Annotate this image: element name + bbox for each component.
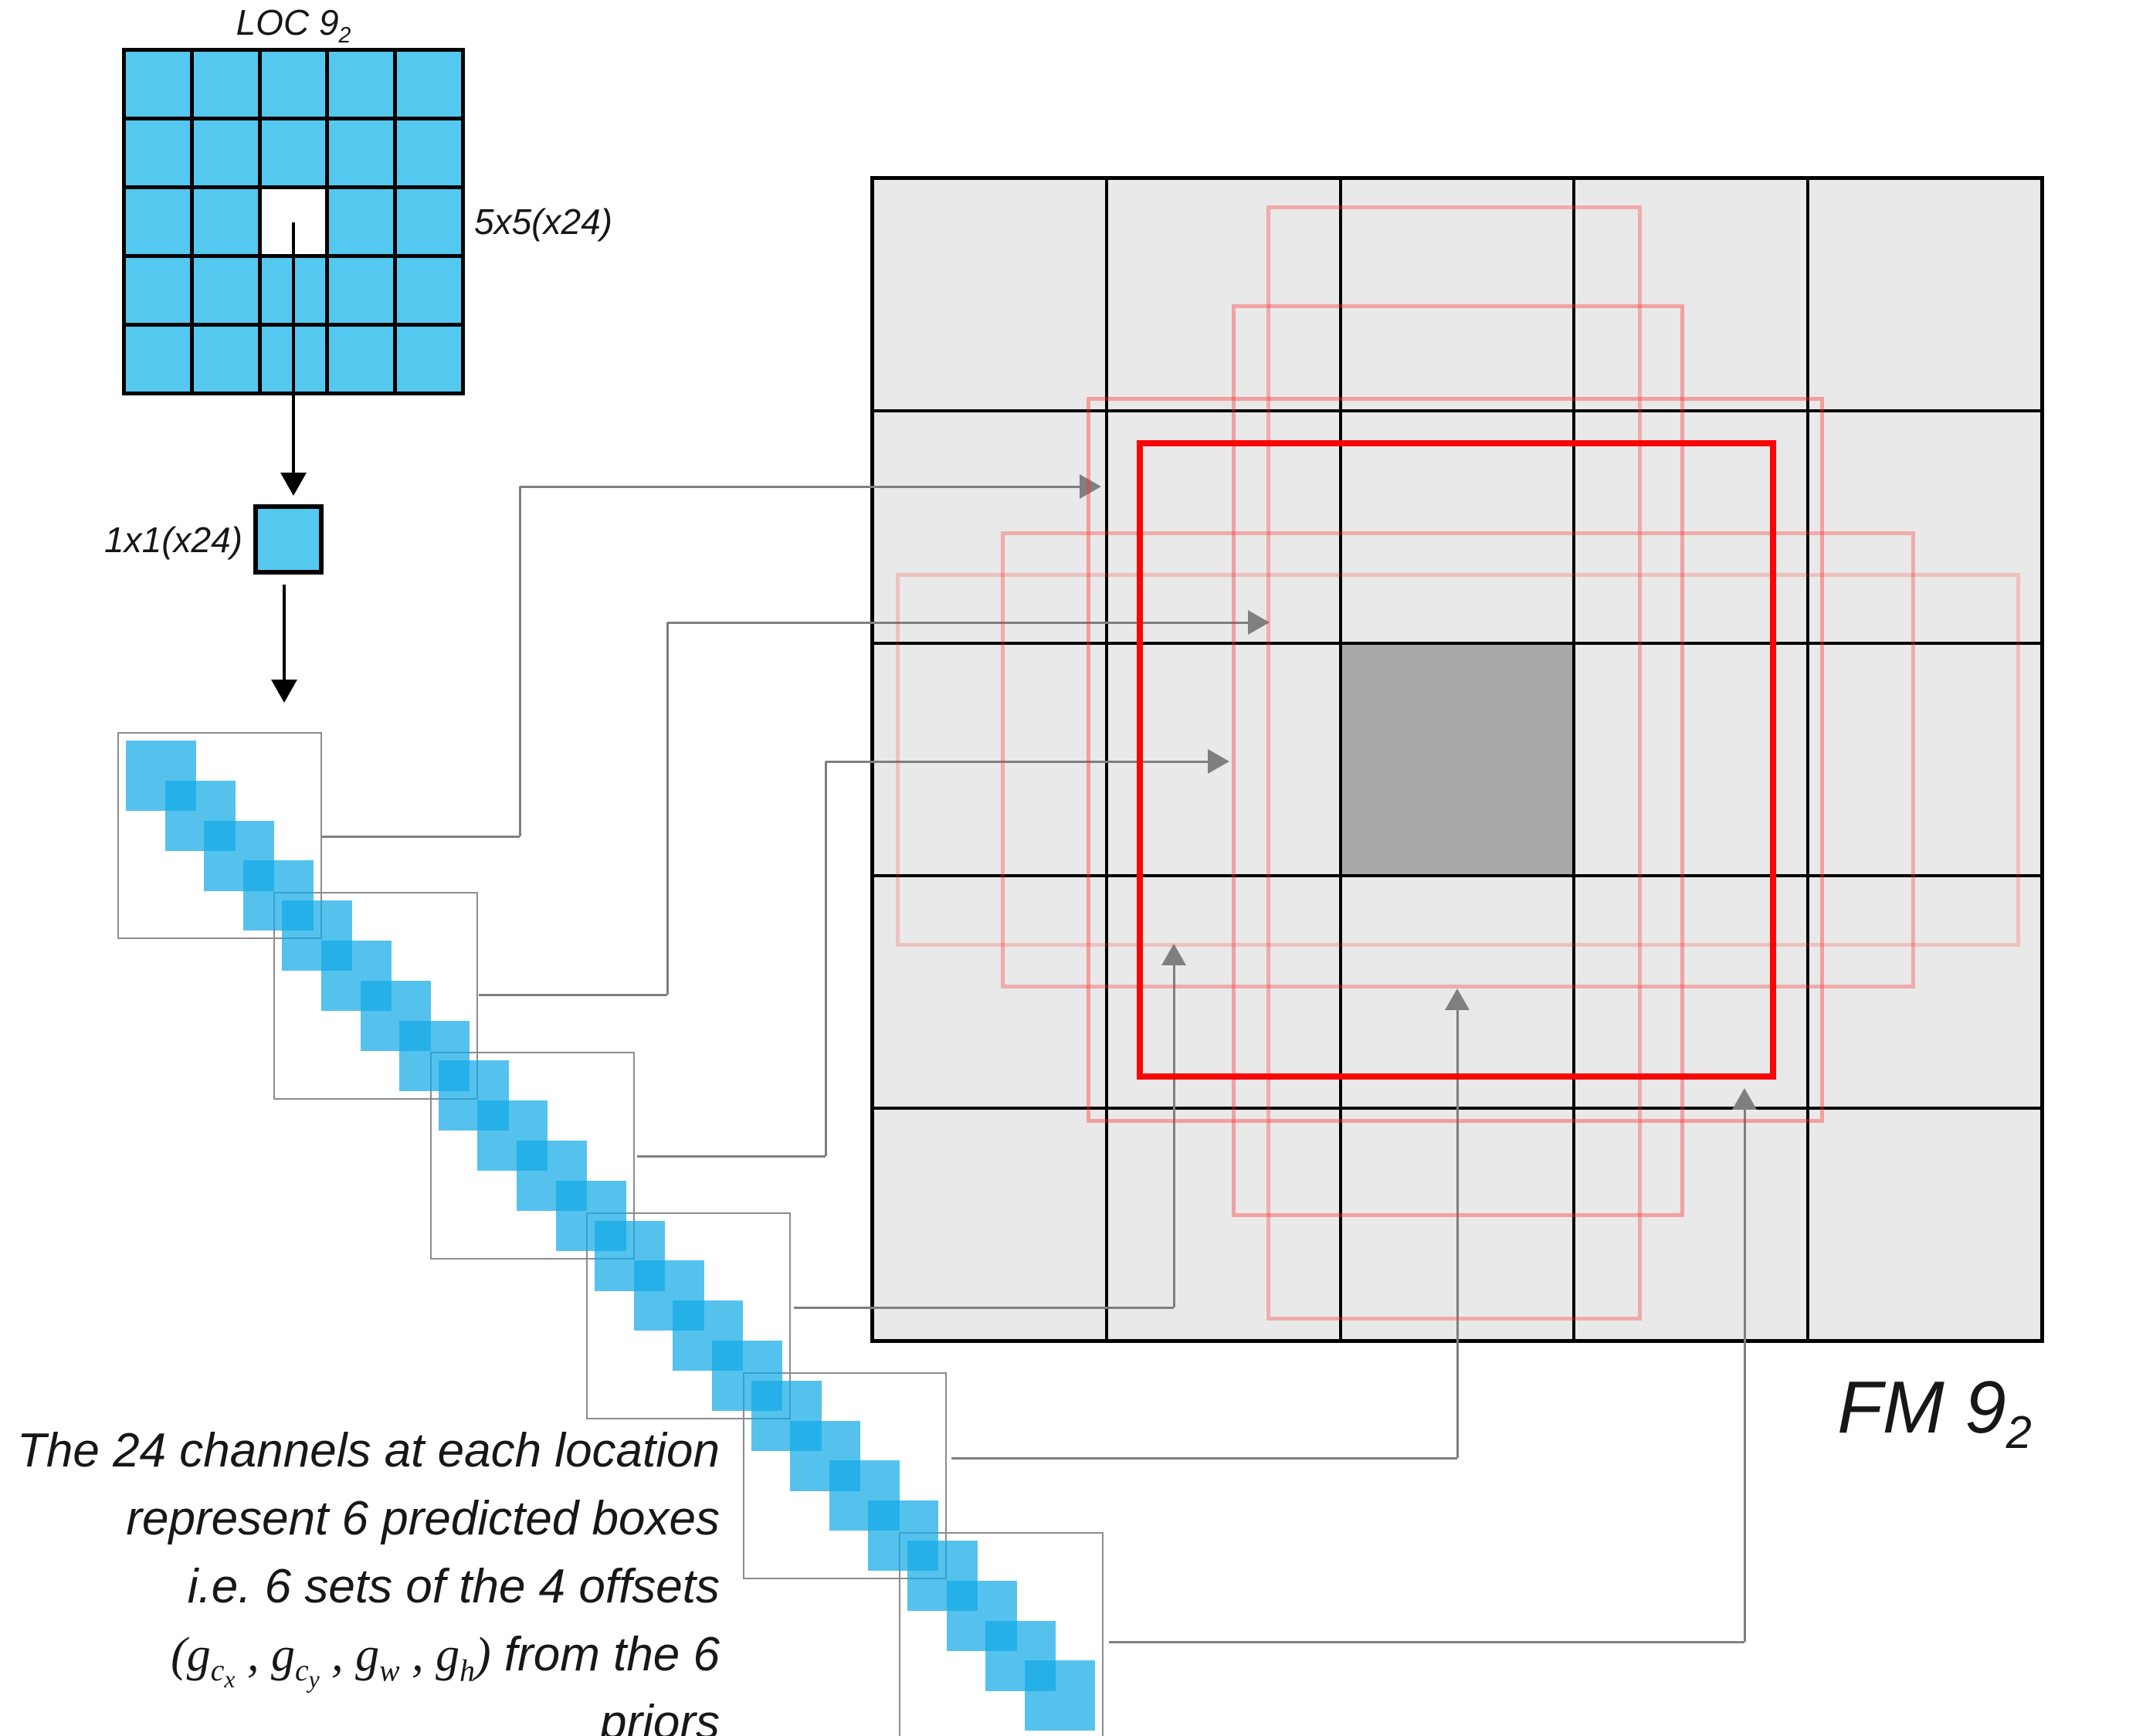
loc-grid-cell <box>194 327 258 392</box>
offset-symbol: gw <box>355 1629 399 1681</box>
loc-grid-cell <box>397 52 461 117</box>
offset-symbol-sub: cy <box>295 1653 320 1687</box>
connector-4-segment <box>794 1307 1174 1309</box>
offset-symbol-base: g <box>187 1629 211 1681</box>
fm-grid-cell <box>1809 180 2040 409</box>
loc-grid-cell <box>126 327 190 392</box>
loc-map-title-subscript: 2 <box>339 23 351 48</box>
prior-square-bold <box>1137 440 1776 1080</box>
arrow-loc-to-conv-arrowhead-icon <box>280 473 307 496</box>
offset-symbol-sub-text: c <box>295 1653 309 1687</box>
feature-map-title-subscript: 2 <box>2006 1406 2032 1458</box>
loc-grid-cell <box>262 120 326 185</box>
offset-symbol-subsub-text: y <box>309 1666 320 1693</box>
offset-symbol-sub-text: h <box>459 1653 475 1687</box>
formula-separator: , <box>320 1629 356 1681</box>
connector-1-segment <box>322 836 520 838</box>
offset-symbol-sub: w <box>379 1653 399 1687</box>
loc-grid-cell <box>397 327 461 392</box>
connector-5-segment <box>951 1457 1457 1460</box>
formula-open-paren: ( <box>171 1629 187 1681</box>
loc-grid-cell <box>329 52 393 117</box>
loc-grid-cell <box>194 189 258 254</box>
loc-grid-cell <box>397 189 461 254</box>
loc-grid-cell <box>397 258 461 323</box>
annotation-note: The 24 channels at each location represe… <box>0 1417 720 1736</box>
loc-grid-cell <box>329 327 393 392</box>
formula-suffix: from the 6 <box>491 1628 720 1681</box>
loc-grid-cell <box>194 120 258 185</box>
loc-grid-cell <box>329 120 393 185</box>
formula-separator: , <box>400 1629 436 1681</box>
fm-grid-cell <box>874 1110 1105 1339</box>
loc-grid-cell <box>126 189 190 254</box>
offset-symbol-sub: h <box>459 1653 475 1687</box>
offset-symbol-sub-text: c <box>211 1653 225 1687</box>
note-line: priors <box>0 1689 720 1736</box>
loc-grid-cell <box>194 258 258 323</box>
arrow-loc-to-conv <box>292 222 295 473</box>
loc-grid-cell <box>194 52 258 117</box>
loc-grid-cell <box>126 120 190 185</box>
note-line: represent 6 predicted boxes <box>0 1485 720 1553</box>
offset-symbol-sub: cx <box>211 1653 236 1687</box>
connector-3-segment <box>825 761 827 1156</box>
connector-6-segment <box>1744 1110 1746 1642</box>
formula-close-paren: ) <box>475 1629 491 1681</box>
loc-grid-cell <box>397 120 461 185</box>
arrow-conv-to-chain-arrowhead-icon <box>271 680 297 703</box>
formula-separator: , <box>235 1629 271 1681</box>
offset-symbol-base: g <box>271 1629 295 1681</box>
connector-2-segment <box>479 994 667 996</box>
note-formula-line: (gcx , gcy , gw , gh) from the 6 <box>0 1621 720 1689</box>
connector-1-segment <box>519 487 521 836</box>
loc-grid-cell <box>126 52 190 117</box>
note-line: i.e. 6 sets of the 4 offsets <box>0 1553 720 1621</box>
connector-1-segment <box>520 486 1080 488</box>
feature-map-title-text: FM 9 <box>1837 1366 2006 1449</box>
offset-symbol-sub-text: w <box>379 1653 399 1687</box>
offset-symbol-subsub: x <box>224 1666 235 1693</box>
loc-map-title: LOC 92 <box>122 2 465 43</box>
loc-grid-cell <box>262 52 326 117</box>
fm-grid-cell <box>874 180 1105 409</box>
conv-output-square <box>253 504 324 575</box>
offset-symbol-base: g <box>436 1629 459 1681</box>
loc-grid-cell <box>329 189 393 254</box>
loc-map-title-text: LOC 9 <box>236 2 339 42</box>
conv-output-label: 1x1(x24) <box>91 519 242 561</box>
loc-grid-cell <box>126 258 190 323</box>
channel-square <box>1025 1660 1095 1731</box>
connector-6-segment <box>1109 1641 1744 1643</box>
kernel-size-label: 5x5(x24) <box>474 201 612 242</box>
offset-symbol-subsub-text: x <box>224 1666 235 1693</box>
note-line: The 24 channels at each location <box>0 1417 720 1485</box>
offset-symbol: gh <box>436 1629 475 1681</box>
fm-grid-cell <box>1809 1110 2040 1339</box>
feature-map-title: FM 92 <box>1815 1365 2054 1450</box>
offset-symbol: gcy <box>271 1629 320 1681</box>
connector-3-segment <box>637 1155 826 1158</box>
offset-symbol: gcx <box>187 1629 236 1681</box>
loc-grid-cell <box>329 258 393 323</box>
connector-2-segment <box>666 622 669 995</box>
offset-symbol-base: g <box>355 1629 379 1681</box>
arrow-conv-to-chain <box>283 585 286 680</box>
offset-symbol-subsub: y <box>309 1666 320 1693</box>
diagram-canvas: LOC 92 5x5(x24) 1x1(x24) FM 92 The 24 ch… <box>0 0 2136 1736</box>
